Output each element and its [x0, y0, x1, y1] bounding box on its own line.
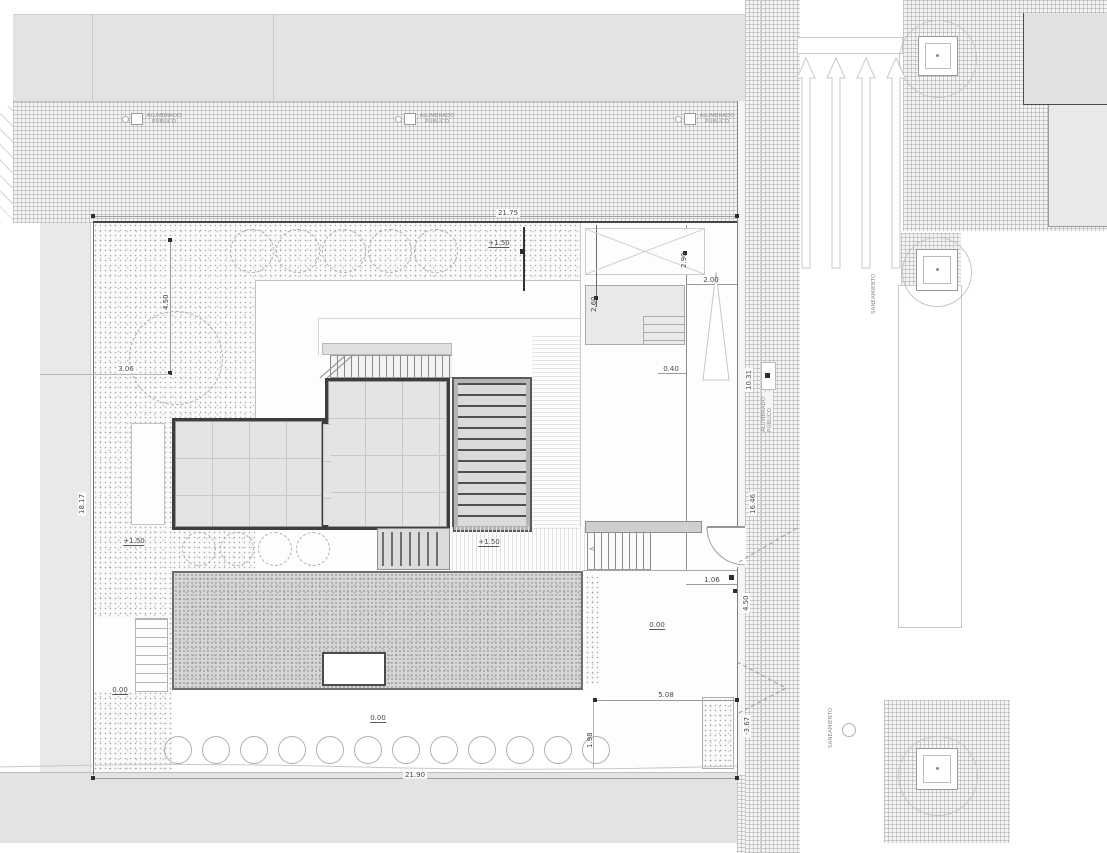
dim-side-offset: 0.40	[663, 365, 679, 373]
level-value: 0.00	[649, 621, 665, 630]
dim-courtyard: 5.08	[658, 691, 674, 699]
dim-street-lower: -3.67	[743, 715, 751, 737]
dim-plot-bottom: 21.90	[403, 771, 427, 779]
road-arrow	[887, 58, 905, 268]
dim-entry-gate: 1.06	[704, 576, 720, 584]
level-value: +1.50	[488, 239, 509, 248]
vehicle-gate-dash	[737, 662, 786, 714]
dim-street-entry: 4.50	[742, 593, 750, 613]
level-value: +1.50	[478, 538, 499, 547]
dim-garden-tree: 4.50	[162, 294, 170, 310]
level-deck: +1.50	[478, 538, 499, 546]
door-swing-arc	[707, 527, 745, 565]
level-courtyard: 0.00	[649, 621, 665, 629]
dim-side-setback: 2.00	[703, 276, 719, 284]
level-path: 0.00	[370, 714, 386, 722]
level-value: 0.00	[370, 714, 386, 723]
dim-street-middle: 16.46	[749, 492, 757, 516]
dim-plot-left: 18.17	[78, 492, 86, 516]
road-arrow	[857, 58, 875, 268]
level-garden-west: +1.50	[123, 537, 144, 545]
linework-overlay	[0, 0, 1107, 853]
kerb-line	[0, 765, 737, 770]
level-stair-foot: 0.00	[112, 686, 128, 694]
cypress-tree	[703, 272, 729, 380]
site-plan-drawing: <	[0, 0, 1107, 853]
dim-stair-b: 2.60	[590, 296, 598, 312]
stair-break-line	[320, 355, 346, 378]
level-garden-upper: +1.50	[488, 239, 509, 247]
level-value: +1.50	[123, 537, 144, 546]
dim-garden-left: 3.06	[116, 365, 136, 373]
lamp-label-vertical: ALUMBRADO PÚBLICO	[762, 392, 773, 432]
dim-courtyard-edge: 1.98	[586, 732, 594, 748]
sewer-label: SANEAMIENTO	[872, 274, 878, 314]
dim-stair-a: 2.90	[680, 252, 688, 268]
sewer-label: SANEAMIENTO	[829, 708, 835, 748]
road-arrow	[797, 58, 815, 268]
dim-plot-top: 21.75	[496, 209, 520, 217]
road-arrow	[827, 58, 845, 268]
stair-break-line	[327, 355, 353, 378]
curb-cut-dash	[739, 528, 797, 562]
dim-street-upper: 10.31	[745, 368, 753, 392]
level-value: 0.00	[112, 686, 128, 695]
